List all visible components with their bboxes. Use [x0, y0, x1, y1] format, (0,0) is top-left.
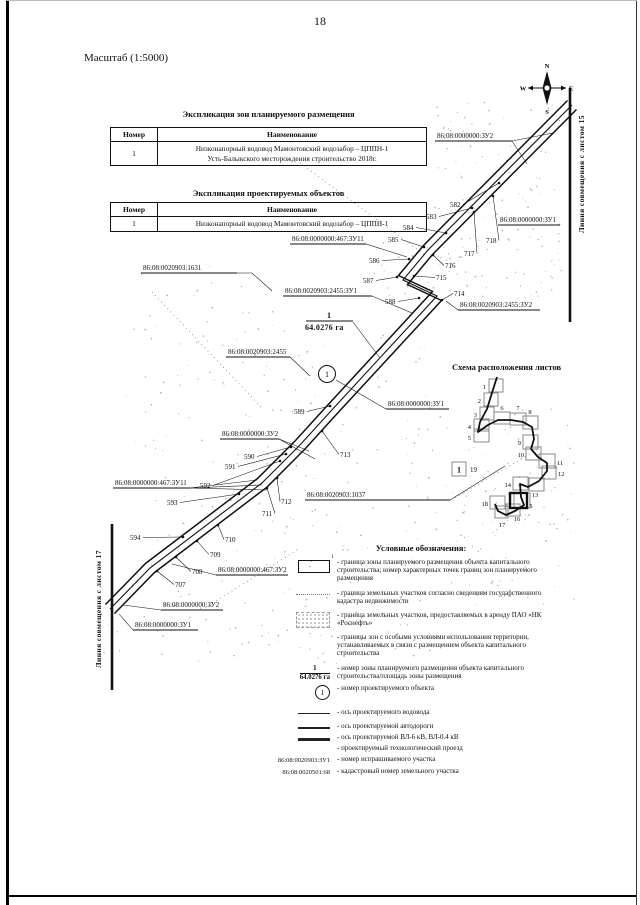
legend-item-text: - граница земельных участков согласно св…: [337, 590, 557, 606]
point-number-label: 716: [445, 262, 456, 270]
sheet-number-label: 9: [518, 440, 521, 447]
point-leader-line: [176, 557, 191, 572]
legend-item-text: - граница земельных участков, предоставл…: [337, 612, 557, 628]
legend-item: 86:08:0020903:ЗУ1- номер испрашиваемого …: [285, 756, 557, 764]
point-number-label: 593: [167, 499, 178, 507]
sheet-number-label: 17: [499, 522, 506, 529]
legend-item: - граница зоны планируемого размещения о…: [285, 559, 557, 582]
legend-item: - проектируемый технологический проезд: [285, 745, 557, 753]
point-number-label: 584: [403, 224, 414, 232]
cadastral-number-label: 86:08:0020903:2455:ЗУ2: [460, 301, 533, 309]
compass-s-label: S: [545, 109, 549, 116]
cadastral-number-label: 86:08:0000000:ЗУ2: [437, 132, 494, 140]
point-leader-line: [414, 276, 435, 278]
point-leader-line: [398, 298, 419, 302]
point-marker-dot: [396, 276, 399, 279]
cadastral-number-label: 86:08:0000000:ЗУ2: [222, 430, 279, 438]
zone-number-area-fraction: 164.0276 га: [305, 311, 380, 358]
none-symbol-icon: [285, 745, 337, 753]
line-symbol-icon: [285, 734, 337, 741]
cadastral-number-label: 86:08:0020903:2455:ЗУ1: [285, 287, 358, 295]
compass-hub: [544, 85, 550, 91]
point-marker-dot: [156, 570, 159, 573]
point-marker-dot: [441, 299, 444, 302]
cadastral-number-label: 86:08:0000000:467:ЗУ11: [292, 235, 364, 243]
point-leader-line: [439, 208, 472, 217]
point-number-label: 714: [454, 290, 465, 298]
sheet-number-label: 7: [516, 405, 520, 412]
point-leader-line: [493, 196, 499, 241]
line-symbol-icon: [285, 723, 337, 729]
cadastral-leader-line: [119, 614, 133, 630]
point-leader-line: [180, 494, 239, 503]
point-leader-line: [442, 294, 453, 301]
scheme-legend-box-mark: 1: [457, 466, 461, 475]
point-marker-dot: [321, 430, 324, 433]
point-number-label: 586: [369, 257, 380, 265]
point-leader-line: [143, 537, 183, 538]
dots-symbol-icon: [285, 590, 337, 595]
point-leader-line: [474, 212, 477, 254]
sheet-number-label: 11: [557, 460, 563, 467]
point-marker-dot: [196, 540, 199, 543]
object-number-text: 1: [325, 370, 329, 379]
cadastral-number-label: 86:08:0020903:2455: [228, 348, 287, 356]
cadastral-leader-line: [366, 244, 407, 257]
legend-item: 86:08:0020501:68- кадастровый номер земе…: [285, 768, 557, 776]
sheet-number-label: 14: [505, 482, 512, 489]
point-marker-dot: [413, 275, 416, 278]
point-number-label: 589: [294, 408, 305, 416]
point-marker-dot: [238, 493, 241, 496]
legend-item-text: - проектируемый технологический проезд: [337, 745, 463, 753]
legend-item-text: - границы зон с особыми условиями исполь…: [337, 634, 557, 657]
point-leader-line: [382, 259, 409, 261]
sheet-number-label: 10: [518, 452, 525, 459]
legend-item-text: - ось проектируемой автодороги: [337, 723, 433, 731]
point-marker-dot: [498, 182, 501, 185]
cadastral-code-sample: 86:08:0020501:68: [285, 768, 337, 776]
cadastral-number-label: 86:08:0020903:1037: [307, 491, 366, 499]
point-number-label: 710: [225, 536, 236, 544]
point-marker-dot: [182, 536, 185, 539]
point-marker-dot: [276, 477, 279, 480]
point-number-label: 707: [175, 581, 186, 589]
point-marker-dot: [492, 195, 495, 198]
legend-item: - границы зон с особыми условиями исполь…: [285, 634, 557, 657]
compass-rose: NSWE: [520, 63, 573, 116]
pipeline-axis: [110, 105, 572, 609]
sheet-number-label: 13: [532, 492, 539, 499]
point-marker-dot: [473, 211, 476, 214]
zone-symbol-icon: [285, 559, 337, 573]
sheet-number-label: 6: [500, 405, 504, 412]
point-leader-line: [218, 525, 224, 540]
cadastral-leader-line: [446, 301, 458, 310]
legend-items: - граница зоны планируемого размещения о…: [285, 559, 557, 776]
cadastral-leader-line: [237, 273, 272, 291]
zone-area: 64.0276 га: [305, 323, 344, 332]
point-number-label: 715: [436, 274, 447, 282]
point-leader-line: [213, 461, 280, 486]
sheet-box: [494, 412, 510, 424]
point-marker-dot: [408, 258, 411, 261]
sheet-number-label: 2: [478, 398, 481, 405]
point-number-label: 583: [426, 213, 437, 221]
point-marker-dot: [329, 405, 332, 408]
sheet-number-label: 16: [514, 516, 521, 523]
legend-item-text: - номер проектируемого объекта: [337, 685, 434, 693]
sheet-number-label: 12: [558, 471, 565, 478]
point-marker-dot: [423, 246, 426, 249]
document-page: 18 Масштаб (1:5000) Экспликация зон план…: [0, 0, 640, 905]
legend-title: Условные обозначения:: [285, 543, 557, 553]
point-leader-line: [157, 571, 174, 585]
sheet-number-label: 4: [468, 424, 472, 431]
sheet-scheme-title: Схема расположения листов: [452, 362, 562, 372]
cadastral-code-sample: 86:08:0020903:ЗУ1: [285, 756, 337, 764]
zone-fraction-symbol: 164.0276 га: [285, 665, 337, 681]
point-marker-dot: [175, 556, 178, 559]
cadastral-number-label: 86:08:0000000:ЗУ1: [388, 400, 445, 408]
point-number-label: 582: [450, 201, 461, 209]
sheet-number-label: 3: [474, 412, 477, 419]
point-number-label: 718: [486, 237, 497, 245]
legend-item: - ось проектируемого водовода: [285, 709, 557, 717]
point-number-label: 591: [225, 463, 236, 471]
speckle-symbol-icon: [285, 612, 337, 628]
legend-item: 1- номер проектируемого объекта: [285, 685, 557, 700]
compass-e-label: E: [569, 86, 573, 93]
sheet-number-label: 5: [468, 435, 471, 442]
compass-e-arrow: [561, 86, 566, 91]
legend-item: - граница земельных участков согласно св…: [285, 590, 557, 606]
legend-item-text: - ось проектируемой ВЛ-6 кВ, ВЛ-0.4 кВ: [337, 734, 459, 742]
sheet-number-label: 8: [528, 409, 531, 416]
compass-w-label: W: [520, 86, 527, 93]
legend-item: - ось проектируемой ВЛ-6 кВ, ВЛ-0.4 кВ: [285, 734, 557, 742]
sheet-scheme: 123456789101112131415161718119: [452, 377, 565, 529]
legend-item: - граница земельных участков, предоставл…: [285, 612, 557, 628]
zone-number: 1: [327, 311, 331, 320]
map-legend: Условные обозначения: - граница зоны пла…: [285, 543, 557, 776]
point-number-label: 711: [262, 510, 273, 518]
sheet-join-label-15: Линия совмещения с листом 15: [577, 115, 586, 233]
cadastral-number-label: 86:08:0020903:1631: [143, 264, 202, 272]
sheet-box: [490, 496, 505, 509]
cadastral-number-label: 86:08:0000000:467:ЗУ11: [115, 479, 187, 487]
legend-item-text: - ось проектируемого водовода: [337, 709, 430, 717]
point-number-label: 590: [244, 453, 255, 461]
legend-item-text: - граница зоны планируемого размещения о…: [337, 559, 557, 582]
cadastral-leader-line: [336, 380, 386, 409]
cadastral-number-label: 86:08:0000000:ЗУ1: [135, 621, 192, 629]
point-number-label: 587: [363, 277, 374, 285]
point-marker-dot: [266, 487, 269, 490]
point-marker-dot: [445, 232, 448, 235]
sheet-join-label-17: Линия совмещения с листом 17: [94, 550, 103, 668]
legend-item: 164.0276 га- номер зоны планируемого раз…: [285, 665, 557, 681]
point-number-label: 594: [130, 534, 141, 542]
point-leader-line: [197, 541, 209, 555]
point-marker-dot: [471, 207, 474, 210]
compass-n-label: N: [545, 63, 550, 70]
cadastral-number-label: 86:08:0000000:ЗУ1: [500, 216, 557, 224]
point-marker-dot: [285, 453, 288, 456]
cadastral-number-label: 86:08:0000000:467:ЗУ2: [218, 566, 287, 574]
point-leader-line: [277, 478, 280, 502]
sheet-number-label: 18: [482, 501, 489, 508]
sheet-number-label: 1: [483, 384, 486, 391]
cadastral-leader-line: [123, 605, 161, 610]
point-number-label: 585: [388, 236, 399, 244]
scheme-legend-box-label: 19: [470, 466, 478, 474]
point-marker-dot: [432, 254, 435, 257]
cadastral-leader-line: [290, 357, 310, 376]
point-marker-dot: [217, 524, 220, 527]
point-marker-dot: [418, 297, 421, 300]
compass-w-arrow: [528, 86, 533, 91]
point-leader-line: [322, 431, 339, 455]
point-number-label: 713: [340, 451, 351, 459]
point-number-label: 717: [464, 250, 475, 258]
line-symbol-icon: [285, 709, 337, 714]
cadastral-number-label: 86:08:0000000:ЗУ2: [163, 601, 220, 609]
legend-item: - ось проектируемой автодороги: [285, 723, 557, 731]
legend-item-text: - номер зоны планируемого размещения объ…: [337, 665, 557, 681]
object-number-symbol: 1: [285, 685, 337, 700]
fraction-leader-line: [353, 322, 380, 358]
legend-item-text: - номер испрашиваемого участка: [337, 756, 435, 764]
point-leader-line: [307, 406, 330, 412]
legend-item-text: - кадастровый номер земельного участка: [337, 768, 459, 776]
none-symbol-icon: [285, 634, 337, 642]
point-number-label: 712: [281, 498, 292, 506]
point-marker-dot: [279, 460, 282, 463]
point-number-label: 709: [210, 551, 221, 559]
point-leader-line: [376, 277, 397, 281]
